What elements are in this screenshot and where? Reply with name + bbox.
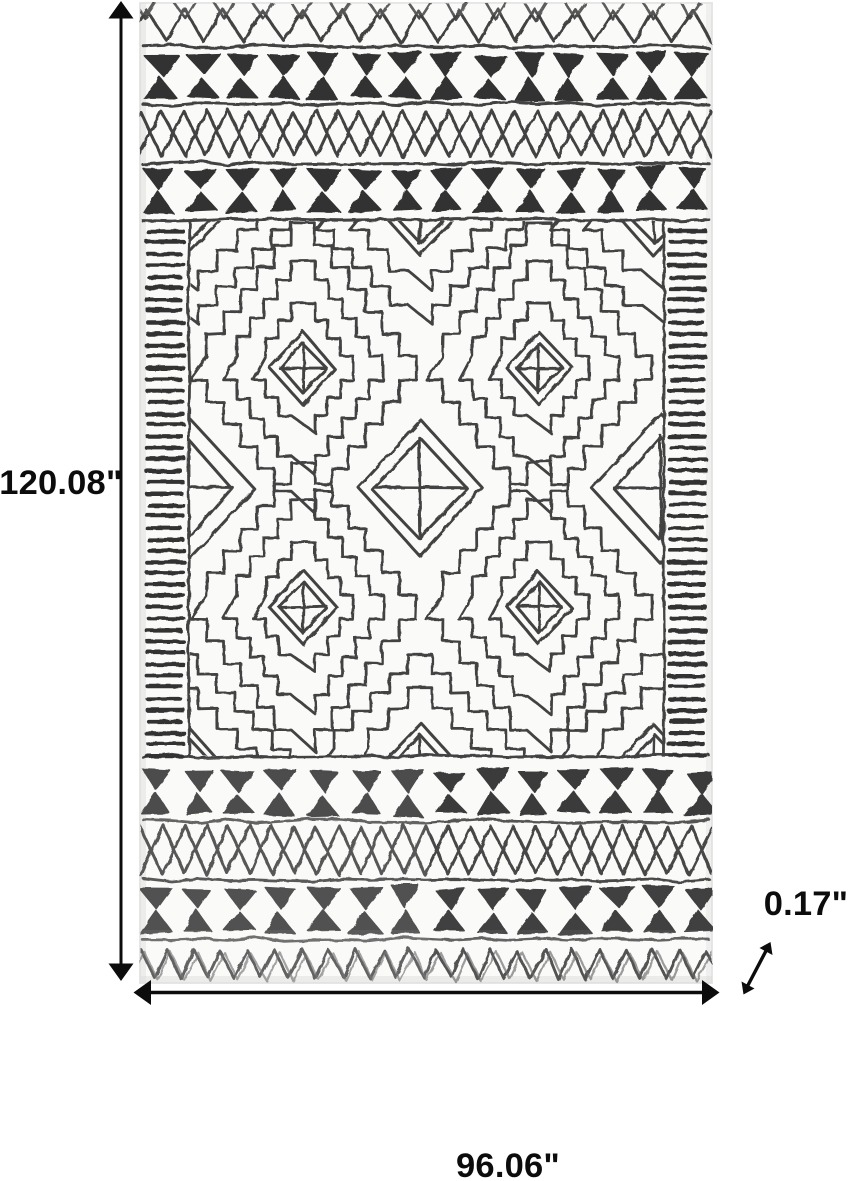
svg-text:0.17": 0.17" xyxy=(764,885,849,923)
svg-text:120.08": 120.08" xyxy=(0,464,123,502)
svg-text:96.06": 96.06" xyxy=(456,1147,560,1181)
